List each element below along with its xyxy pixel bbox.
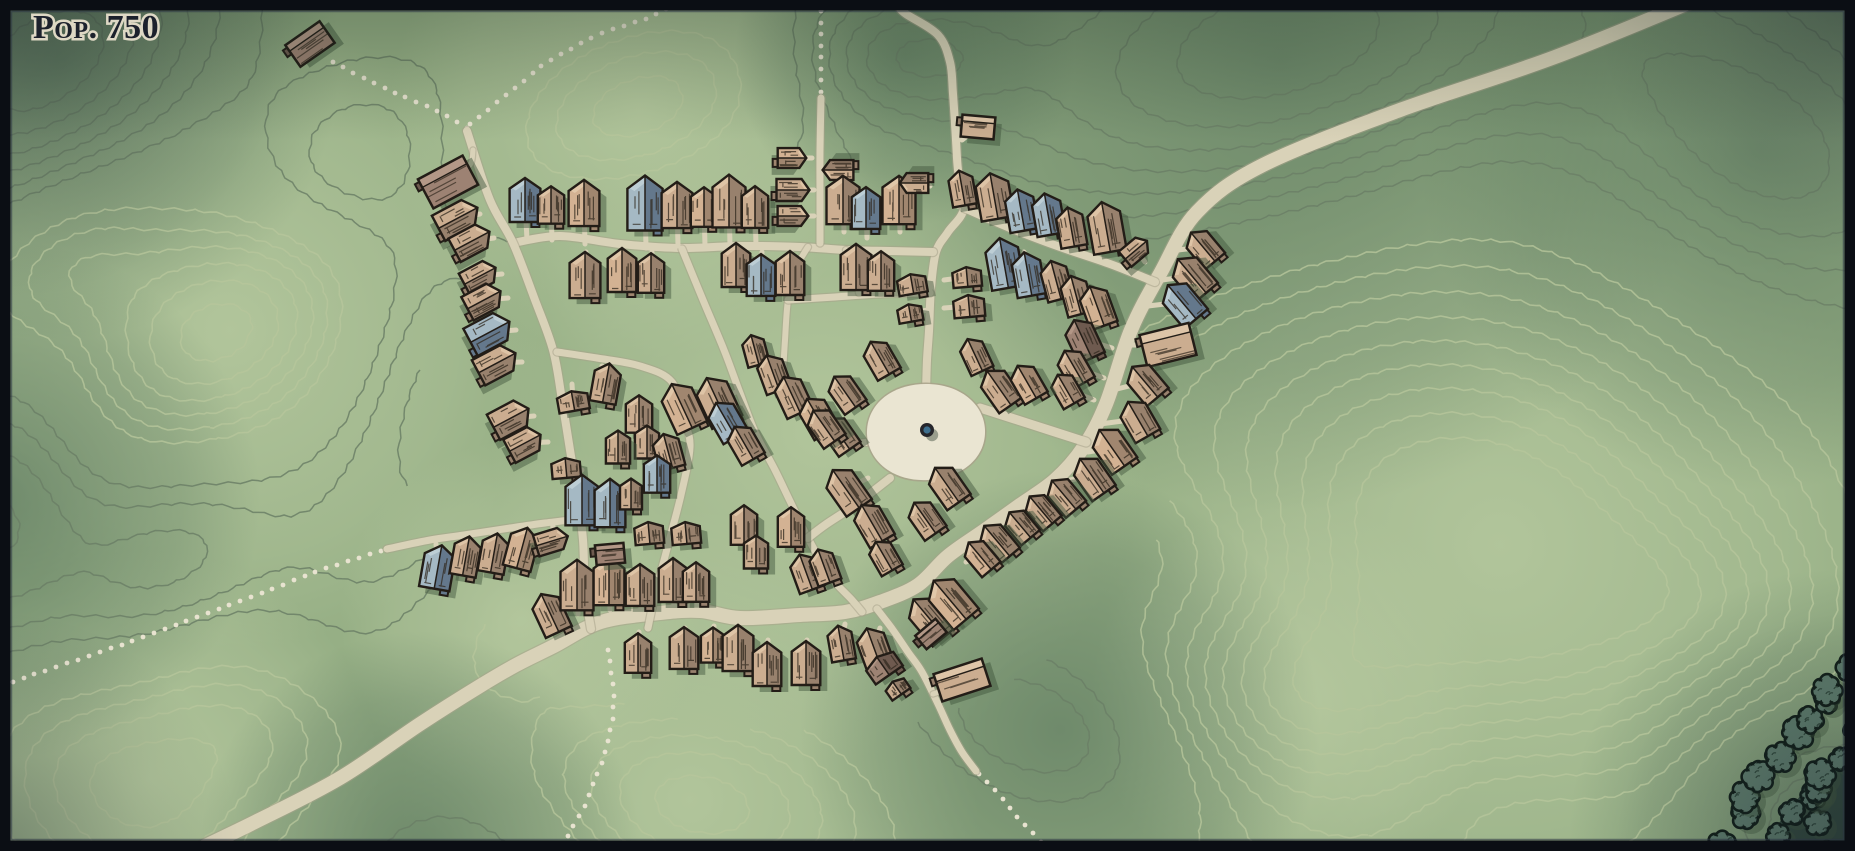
svg-text:Pop. 750: Pop. 750 <box>33 9 159 46</box>
